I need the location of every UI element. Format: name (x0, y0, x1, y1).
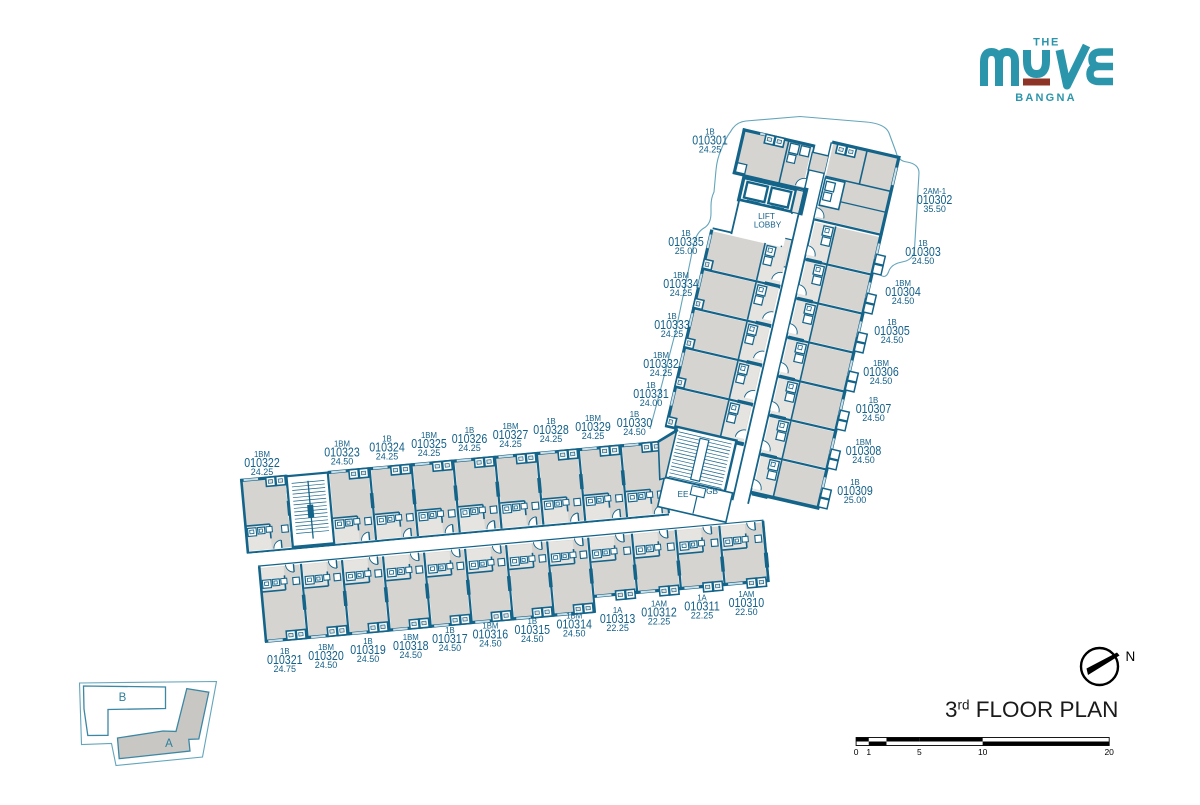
svg-text:24.50: 24.50 (479, 639, 502, 649)
svg-text:24.25: 24.25 (699, 145, 722, 155)
svg-text:5: 5 (917, 747, 922, 757)
svg-text:24.50: 24.50 (862, 413, 885, 423)
svg-text:GB: GB (706, 487, 718, 496)
svg-text:24.50: 24.50 (623, 427, 646, 437)
svg-text:N: N (1126, 649, 1136, 664)
svg-text:24.50: 24.50 (357, 654, 380, 664)
svg-text:24.25: 24.25 (661, 329, 684, 339)
svg-text:24.00: 24.00 (640, 398, 663, 408)
svg-text:24.50: 24.50 (870, 376, 893, 386)
svg-text:25.00: 25.00 (675, 246, 698, 256)
svg-text:24.25: 24.25 (582, 431, 605, 441)
svg-text:24.50: 24.50 (439, 643, 462, 653)
svg-text:24.25: 24.25 (376, 452, 399, 462)
svg-text:24.50: 24.50 (892, 296, 915, 306)
svg-text:24.25: 24.25 (670, 288, 693, 298)
svg-text:24.50: 24.50 (881, 335, 904, 345)
svg-text:10: 10 (978, 747, 988, 757)
svg-text:24.25: 24.25 (499, 439, 522, 449)
svg-text:35.50: 35.50 (923, 204, 946, 214)
svg-text:24.50: 24.50 (315, 660, 338, 670)
svg-text:THE: THE (1033, 37, 1060, 49)
svg-text:24.25: 24.25 (650, 368, 673, 378)
svg-text:24.50: 24.50 (852, 455, 875, 465)
svg-text:B: B (119, 692, 127, 704)
svg-text:24.50: 24.50 (912, 256, 935, 266)
svg-text:22.25: 22.25 (606, 623, 629, 633)
svg-text:LOBBY: LOBBY (754, 221, 782, 230)
svg-text:22.50: 22.50 (735, 607, 758, 617)
svg-text:25.00: 25.00 (844, 495, 867, 505)
svg-text:22.25: 22.25 (648, 616, 671, 626)
svg-text:24.50: 24.50 (563, 628, 586, 638)
svg-text:24.75: 24.75 (274, 664, 297, 674)
svg-text:24.25: 24.25 (418, 448, 441, 458)
svg-text:24.50: 24.50 (521, 634, 544, 644)
svg-text:24.50: 24.50 (400, 650, 423, 660)
svg-text:3rd FLOOR PLAN: 3rd FLOOR PLAN (945, 697, 1118, 722)
svg-text:BANGNA: BANGNA (1015, 92, 1076, 104)
svg-text:20: 20 (1104, 747, 1114, 757)
svg-text:24.25: 24.25 (458, 443, 481, 453)
svg-text:0: 0 (854, 747, 859, 757)
svg-text:24.25: 24.25 (251, 467, 274, 477)
svg-text:24.25: 24.25 (540, 434, 563, 444)
svg-text:A: A (165, 738, 173, 750)
svg-text:1: 1 (866, 747, 871, 757)
svg-text:24.50: 24.50 (331, 456, 354, 466)
svg-text:EE: EE (678, 490, 689, 499)
svg-text:22.25: 22.25 (691, 610, 714, 620)
